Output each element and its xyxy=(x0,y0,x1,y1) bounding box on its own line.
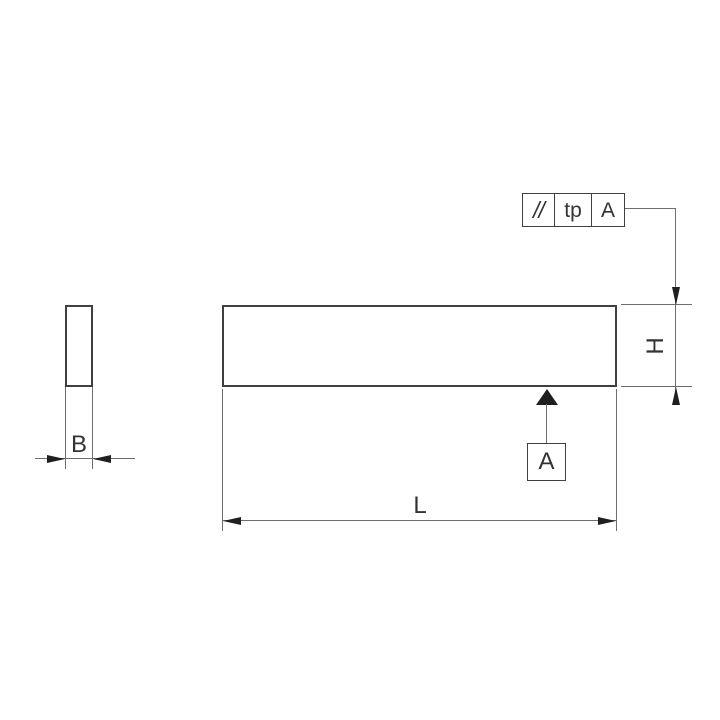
dim-h-label: H xyxy=(642,332,670,360)
datum-triangle-icon xyxy=(536,389,558,405)
dim-l-label: L xyxy=(390,494,450,518)
side-view-rectangle xyxy=(65,305,93,387)
dim-l-dimension-line xyxy=(223,520,616,521)
datum-stem-line xyxy=(546,404,547,444)
dim-l-extension-line-left xyxy=(222,389,223,531)
dim-l-extension-line-right xyxy=(616,389,617,531)
dim-h-arrowhead-top-icon xyxy=(672,287,680,305)
feature-control-frame: // tp A xyxy=(522,193,625,227)
dim-l-arrowhead-left-icon xyxy=(223,517,241,525)
fcf-datum-cell: A xyxy=(592,194,624,226)
parallelism-symbol-icon: // xyxy=(523,194,554,226)
dim-l-arrowhead-right-icon xyxy=(598,517,616,525)
fcf-tolerance-cell: tp xyxy=(554,194,592,226)
datum-label-box: A xyxy=(527,443,566,481)
fcf-leader-line-horizontal xyxy=(625,208,676,209)
dim-h-arrowhead-bottom-icon xyxy=(672,387,680,405)
technical-drawing: B // tp A H A L xyxy=(0,0,720,720)
fcf-leader-and-h-dimension-line xyxy=(675,209,676,405)
dim-b-label: B xyxy=(59,433,99,457)
dim-h-extension-line-top xyxy=(621,304,692,305)
front-view-rectangle xyxy=(222,305,617,387)
datum-label: A xyxy=(538,448,554,476)
dim-h-extension-line-bottom xyxy=(621,386,692,387)
